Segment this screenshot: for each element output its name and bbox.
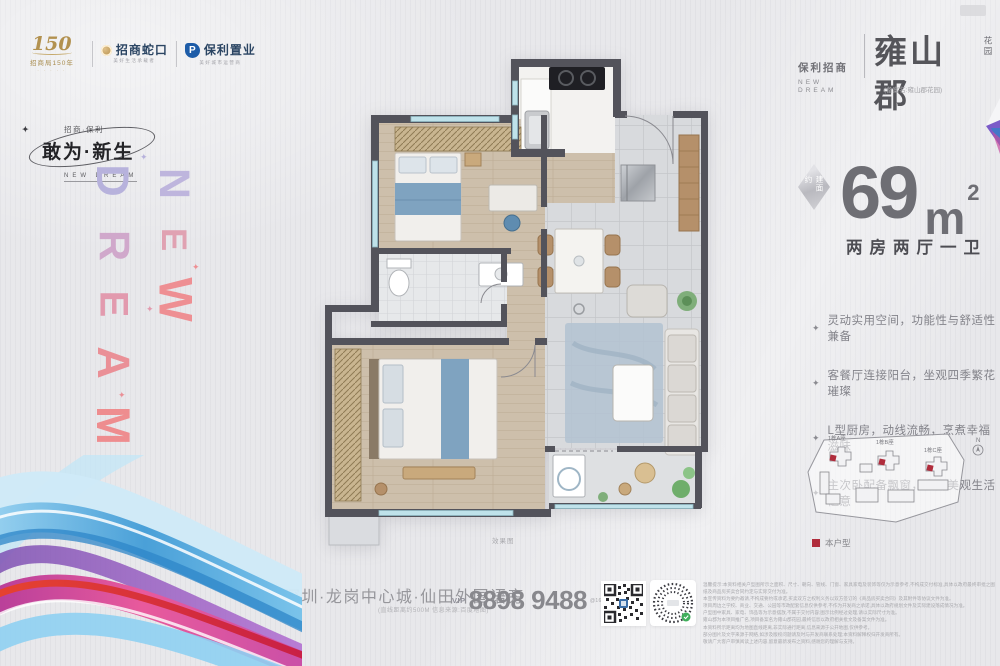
- legend-label: 本户型: [825, 537, 851, 549]
- building-label-c: 1栋C座: [924, 446, 943, 454]
- poly-logo: P 保利置业 美好城市运营商: [185, 43, 256, 66]
- floor-plan: [283, 53, 713, 550]
- site-plan: 1栋A座 1栋B座 1栋C座 N: [800, 428, 992, 534]
- cm150-dots: · · · · ·: [37, 68, 66, 73]
- legend-red-square-icon: [812, 539, 820, 547]
- ribbon-wave-graphic: [0, 455, 302, 666]
- area-badge-label: 建面约: [803, 176, 825, 199]
- cm150-label: 招商局150年: [30, 57, 74, 67]
- cm150-number: 150: [32, 35, 72, 55]
- letter-m: M: [90, 406, 137, 445]
- divider: [864, 34, 865, 78]
- letter-e: E: [93, 291, 133, 318]
- vertical-new-dream: D R E A M N E W ✦ ✦ ✦ ✦: [88, 152, 218, 482]
- feature-item: ✦客餐厅连接阳台，坐观四季繁花璀璨: [812, 367, 1000, 399]
- diamond-bullet-icon: ✦: [812, 378, 820, 389]
- letter-w: W: [153, 277, 200, 321]
- letter-d: D: [90, 164, 135, 197]
- floor-plan-caption: 效果图: [492, 535, 515, 545]
- site-plan-legend: 本户型: [812, 537, 851, 549]
- crystal-fold-graphic: [982, 98, 1000, 168]
- cmsk-tagline: 美好生活承载者: [113, 58, 155, 64]
- building-label-b: 1栋B座: [876, 438, 894, 446]
- sparkle-icon: ✦: [118, 390, 126, 401]
- svg-text:N: N: [976, 438, 980, 444]
- letter-r: R: [92, 230, 135, 261]
- sparkle-icon: ✦: [140, 152, 148, 163]
- poly-name: 保利置业: [204, 44, 256, 56]
- sparkle-icon: ✦: [146, 304, 154, 315]
- layout-text: 两房两厅一卫: [846, 234, 987, 258]
- cmsk-logo: 招商蛇口 美好生活承载者: [101, 44, 168, 64]
- north-indicator: N: [973, 438, 983, 455]
- phone-number: 8898 9488: [469, 586, 587, 614]
- project-brand: 保利招商: [798, 60, 848, 75]
- sparkle-icon: ✦: [192, 262, 200, 273]
- building-label-a: 1栋A座: [828, 434, 846, 442]
- area-badge-diamond: 建面约: [798, 164, 830, 210]
- project-record-name: (备案名:雍山郡花园): [884, 84, 942, 94]
- qr-code-round: [650, 580, 696, 626]
- phone-block: VIP 8898 9488 @163.COM: [452, 586, 619, 614]
- project-name: 雍山郡: [874, 30, 980, 118]
- area-superscript: 2: [967, 180, 979, 205]
- diamond-bullet-icon: ✦: [812, 323, 820, 334]
- brand-bar: 150 招商局150年 · · · · · 招商蛇口 美好生活承载者 P 保利置…: [30, 36, 256, 72]
- cm150-logo: 150 招商局150年 · · · · ·: [30, 35, 74, 73]
- cmsk-emblem-icon: [101, 45, 112, 56]
- project-title-block: 保利招商 NEW DREAM 雍山郡 花园: [798, 30, 994, 118]
- area-value: 69: [840, 158, 916, 228]
- cmsk-name: 招商蛇口: [116, 44, 168, 56]
- star-icon: ✦: [22, 125, 31, 134]
- letter-a: A: [91, 346, 136, 379]
- divider: [176, 41, 177, 67]
- disclaimer-text: 温馨提示:本资料相关户型图所示之面积、尺寸、朝向、管线、门窗、家具家电及装饰等仅…: [703, 581, 995, 645]
- project-brand-en: NEW DREAM: [798, 79, 858, 95]
- feature-item: ✦灵动实用空间，功能性与舒适性兼备: [812, 312, 1000, 344]
- corner-mark: [960, 5, 986, 16]
- divider: [92, 41, 93, 67]
- letter-n: N: [152, 168, 195, 199]
- poly-emblem-icon: P: [185, 43, 200, 58]
- poster: 150 招商局150年 · · · · · 招商蛇口 美好生活承载者 P 保利置…: [0, 0, 1000, 666]
- letter-e2: E: [156, 228, 191, 251]
- qr-code-square: [601, 581, 646, 626]
- vip-label: VIP: [452, 596, 466, 605]
- poly-tagline: 美好城市运营商: [199, 60, 241, 66]
